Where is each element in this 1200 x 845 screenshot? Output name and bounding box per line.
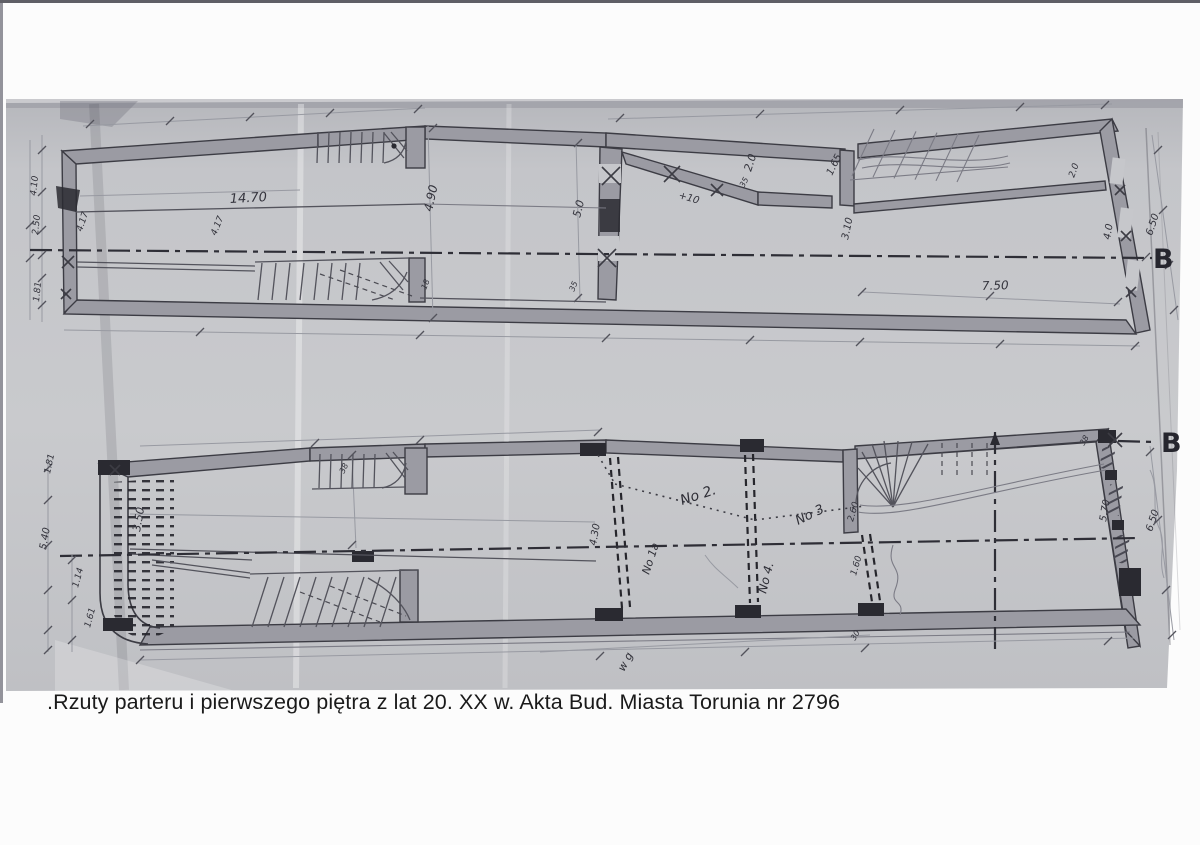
pier (98, 460, 130, 475)
dimension-annotation: 7.50 (982, 278, 1010, 293)
caption: .Rzuty parteru i pierwszego piętra z lat… (47, 690, 1047, 715)
chimney-block (600, 199, 620, 232)
section-label-B: B (1161, 428, 1182, 459)
dimension-annotation: 2.50 (31, 214, 43, 235)
wall-blob (56, 186, 80, 212)
stair-wall-block (406, 127, 425, 168)
floor-plan-drawing: 14.704.904.174.172.504.101.815.03518+102… (0, 0, 1200, 845)
dimension-annotation: 14.70 (229, 190, 267, 207)
shopfront-dashes (112, 478, 174, 640)
section-line-B (1118, 441, 1155, 442)
left-wall (62, 151, 77, 313)
photo-area (6, 99, 1183, 691)
chimney-block (1119, 568, 1141, 596)
dimension-annotation: 1.81 (32, 281, 44, 302)
book-page: 14.704.904.174.172.504.101.815.03518+102… (0, 0, 1200, 845)
section-label-B: B (1153, 244, 1174, 275)
photo-background (6, 99, 1183, 691)
dimension-annotation: 4.10 (29, 175, 41, 196)
